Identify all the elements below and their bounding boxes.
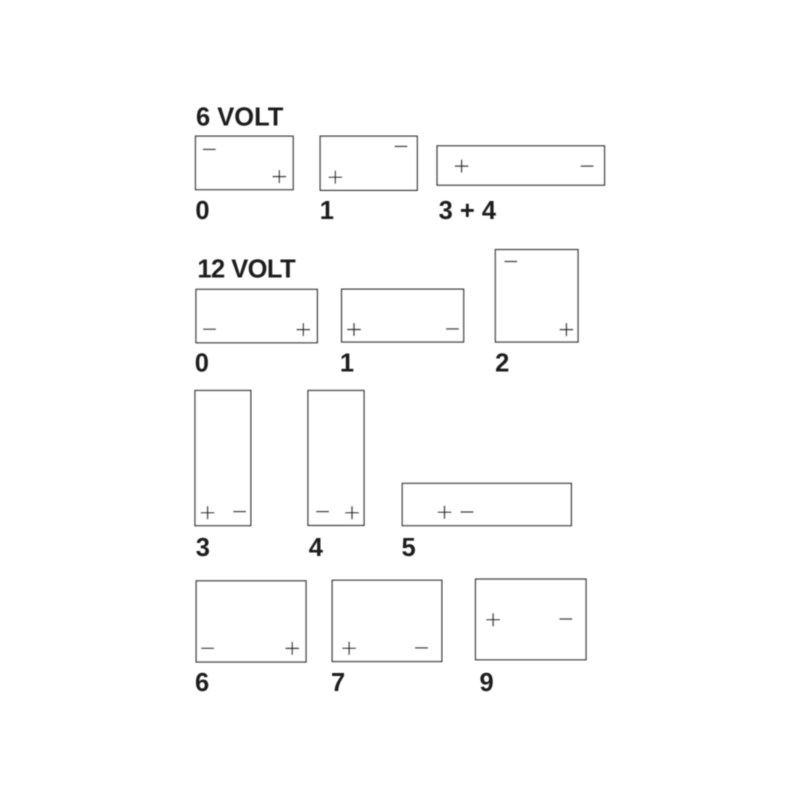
svg-text:3 + 4: 3 + 4 xyxy=(439,197,497,225)
svg-text:5: 5 xyxy=(402,534,416,562)
svg-text:12 VOLT: 12 VOLT xyxy=(197,256,296,284)
svg-text:9: 9 xyxy=(480,669,494,697)
svg-text:6: 6 xyxy=(195,669,209,697)
svg-text:1: 1 xyxy=(340,350,354,378)
svg-text:0: 0 xyxy=(195,350,209,378)
svg-text:6 VOLT: 6 VOLT xyxy=(196,104,284,132)
svg-text:1: 1 xyxy=(320,197,334,225)
svg-text:2: 2 xyxy=(495,350,509,378)
svg-text:0: 0 xyxy=(195,197,209,225)
svg-text:4: 4 xyxy=(309,534,324,562)
svg-text:3: 3 xyxy=(196,534,210,562)
svg-text:7: 7 xyxy=(331,669,345,697)
